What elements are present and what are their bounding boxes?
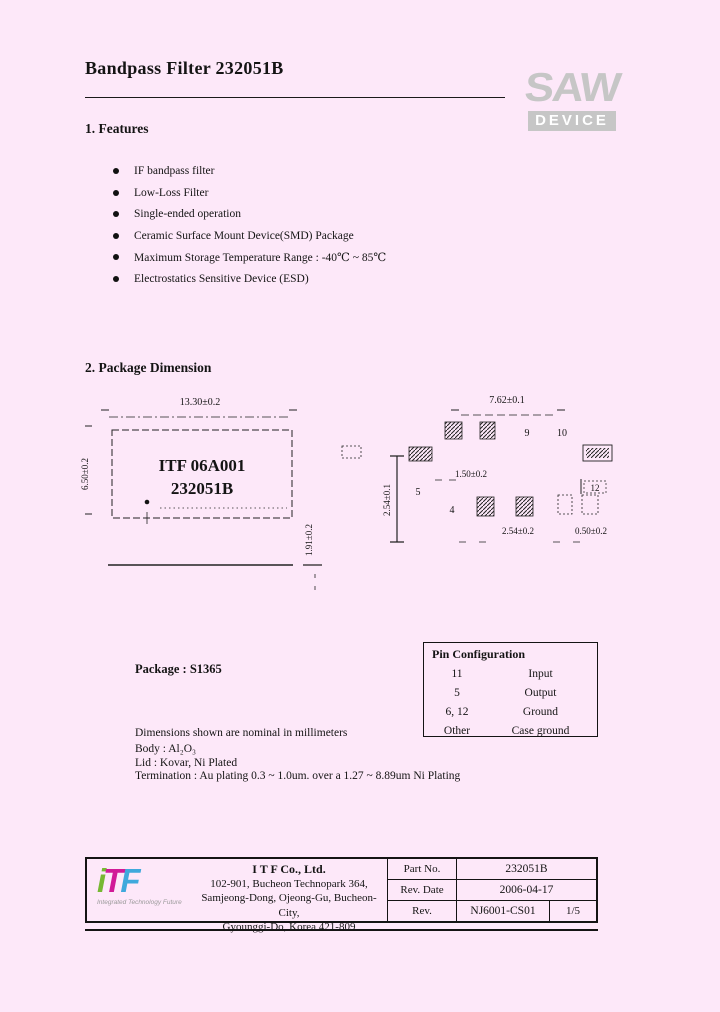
feature-text: Ceramic Surface Mount Device(SMD) Packag… [134,230,354,242]
device-logo-bar: DEVICE [528,111,616,131]
features-heading: 1. Features [85,121,149,137]
part-no-value: 232051B [457,859,596,879]
rev-value: NJ6001-CS01 [457,901,549,921]
rev-date-value: 2006-04-17 [457,880,596,900]
package-type-label: Package : S1365 [135,662,222,677]
itf-letter-t: T [103,862,120,899]
pin-number-label: 9 [525,428,530,439]
feature-text: Single-ended operation [134,208,241,220]
saw-logo-text: SAW [522,68,622,108]
pin-config-row: Other Case ground [424,721,597,740]
title-rule [85,97,505,98]
dimension-pad-pitch-small: 1.50±0.2 [455,469,487,479]
pad-outline [558,495,572,514]
bullet-icon [113,168,119,174]
feature-text: IF bandpass filter [134,165,214,177]
itf-logo-letters: iTF [97,864,191,897]
part-no-label: Part No. [388,859,457,879]
note-termination: Termination : Au plating 0.3 ~ 1.0um. ov… [135,770,460,782]
pad-hatched [480,422,495,439]
company-cell: iTF Integrated Technology Future I T F C… [87,859,388,921]
pin-number: 6, 12 [424,706,490,718]
itf-logo: iTF Integrated Technology Future [87,859,191,921]
feature-text: Electrostatics Sensitive Device (ESD) [134,273,309,285]
address-line: Samjeong-Dong, Ojeong-Gu, Bucheon-City, [191,891,387,920]
itf-letter-f: F [120,862,137,899]
bullet-icon [113,190,119,196]
note-dimensions: Dimensions shown are nominal in millimet… [135,727,347,739]
pin-number-label: 4 [450,505,455,516]
dimension-side-height: 1.91±0.2 [304,524,314,556]
dimension-body-height: 6.50±0.2 [80,458,90,490]
rev-label: Rev. [388,901,457,921]
pad-outline [582,495,598,514]
footer-table: iTF Integrated Technology Future I T F C… [85,857,598,923]
pin-config-row: 5 Output [424,683,597,702]
saw-device-logo: SAW DEVICE [524,66,620,131]
pin-number-label: 10 [557,428,567,439]
bullet-icon [113,254,119,260]
pad-hatched [586,448,609,458]
package-heading: 2. Package Dimension [85,360,211,376]
chip-marking-line2: 232051B [171,479,233,498]
pin-function: Ground [490,706,597,718]
pin-number-label: 5 [416,487,421,498]
company-name: I T F Co., Ltd. [191,862,387,877]
address-line: Gyounggi-Do, Korea 421-809 [191,920,387,935]
dimension-pad-pitch: 2.54±0.2 [502,526,534,536]
pin-number: 11 [424,668,490,680]
pin-config-title: Pin Configuration [432,647,597,662]
feature-item: Electrostatics Sensitive Device (ESD) [113,273,386,285]
bullet-icon [113,211,119,217]
page-title: Bandpass Filter 232051B [85,58,284,79]
feature-item: Low-Loss Filter [113,187,386,199]
features-list: IF bandpass filter Low-Loss Filter Singl… [113,165,386,294]
pad-hatched [445,422,462,439]
rev-date-label: Rev. Date [388,880,457,900]
dimension-land-width: 7.62±0.1 [489,395,525,406]
feature-item: Maximum Storage Temperature Range : -40℃… [113,251,386,263]
feature-item: Single-ended operation [113,208,386,220]
pad-outline [342,446,361,458]
pin-function: Output [490,687,597,699]
pin-number: Other [424,725,490,737]
feature-item: Ceramic Surface Mount Device(SMD) Packag… [113,230,386,242]
feature-text: Low-Loss Filter [134,187,208,199]
bullet-icon [113,276,119,282]
package-dimension-drawing: 13.30±0.2 ITF 06A001 232051B 6.50±0.2 1.… [75,390,635,605]
document-info-grid: Part No. 232051B Rev. Date 2006-04-17 Re… [388,859,596,921]
itf-tagline: Integrated Technology Future [97,899,191,906]
datasheet-page: Bandpass Filter 232051B SAW DEVICE 1. Fe… [0,0,720,1012]
rev-date-row: Rev. Date 2006-04-17 [388,880,596,901]
dimension-land-height: 2.54±0.1 [382,484,392,516]
dimension-pad-width: 0.50±0.2 [575,526,607,536]
page-number: 1/5 [549,901,596,921]
feature-item: IF bandpass filter [113,165,386,177]
rev-row: Rev. NJ6001-CS01 1/5 [388,901,596,921]
note-body-material: Body : Al₂O₃ [135,743,196,755]
part-no-row: Part No. 232051B [388,859,596,880]
bullet-icon [113,233,119,239]
dimension-body-width: 13.30±0.2 [180,397,221,408]
address-line: 102-901, Bucheon Technopark 364, [191,877,387,892]
bottom-rule [85,929,598,931]
pin-configuration-table: Pin Configuration 11 Input 5 Output 6, 1… [423,642,598,737]
pad-hatched [477,497,494,516]
company-address: I T F Co., Ltd. 102-901, Bucheon Technop… [191,859,387,921]
pin-config-row: 11 Input [424,664,597,683]
pad-hatched [409,447,432,461]
feature-text: Maximum Storage Temperature Range : -40℃… [134,250,386,264]
pin-function: Input [490,668,597,680]
pin-number-label: 12 [591,483,600,493]
chip-marking-line1: ITF 06A001 [159,456,246,475]
pin-function: Case ground [490,725,597,737]
pad-hatched [516,497,533,516]
pin-config-row: 6, 12 Ground [424,702,597,721]
pin-number: 5 [424,687,490,699]
note-lid-material: Lid : Kovar, Ni Plated [135,757,237,769]
